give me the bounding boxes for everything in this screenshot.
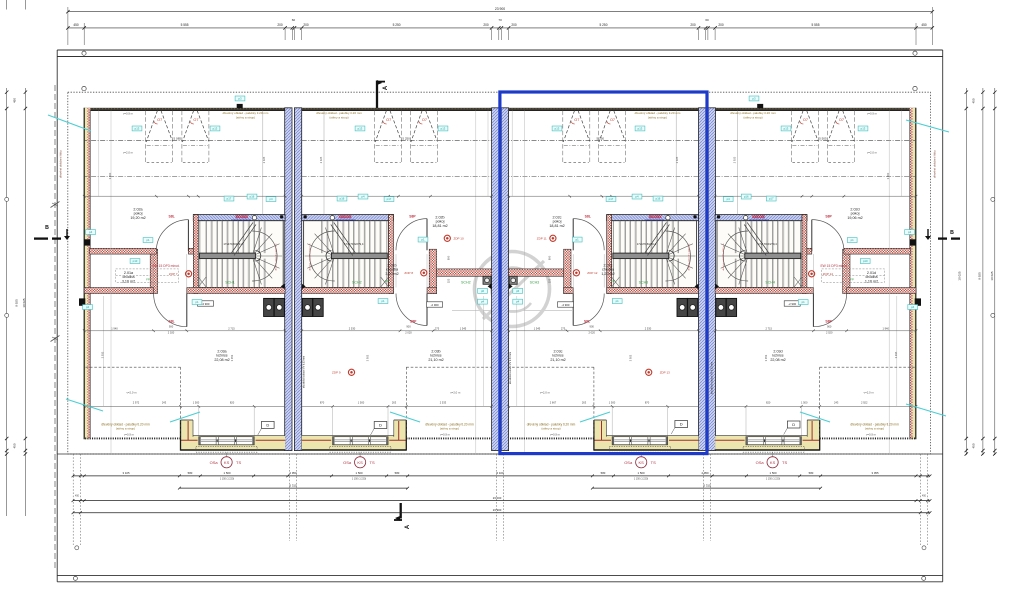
- svg-text:TS: TS: [782, 460, 787, 465]
- svg-text:dřevěné obložení štítu: dřevěné obložení štítu: [933, 150, 937, 178]
- svg-text:820: 820: [766, 401, 771, 405]
- svg-text:1 500: 1 500: [193, 401, 200, 405]
- svg-text:200: 200: [259, 0, 264, 1]
- svg-text:A: A: [405, 524, 411, 529]
- svg-text:9 925: 9 925: [977, 272, 981, 280]
- svg-text:2.03a: 2.03a: [217, 349, 227, 353]
- svg-text:60: 60: [292, 18, 296, 22]
- svg-text:p6: p6: [481, 289, 485, 293]
- svg-text:2.03d: 2.03d: [773, 349, 782, 353]
- svg-text:2 950: 2 950: [702, 471, 709, 475]
- svg-text:p13: p13: [213, 127, 218, 131]
- svg-text:580: 580: [395, 471, 400, 475]
- svg-text:p17: p17: [609, 197, 614, 201]
- svg-text:FP: FP: [146, 278, 150, 282]
- svg-text:450: 450: [972, 443, 976, 448]
- svg-text:1,16 m2: 1,16 m2: [865, 280, 878, 284]
- svg-text:3 953: 3 953: [629, 354, 633, 361]
- svg-text:akustická izolace MV tl.50 mm: akustická izolace MV tl.50 mm: [710, 362, 713, 394]
- svg-text:FP: FP: [611, 279, 615, 283]
- svg-text:1 150 (1 220): 1 150 (1 220): [634, 477, 648, 480]
- svg-text:D: D: [680, 422, 683, 427]
- svg-text:p3: p3: [238, 97, 242, 101]
- svg-text:chodba: chodba: [602, 268, 615, 272]
- svg-text:(stěny a strop): (stěny a strop): [648, 115, 667, 119]
- svg-text:2 715: 2 715: [765, 326, 772, 330]
- svg-text:525: 525: [548, 278, 552, 283]
- svg-text:3,16 m2: 3,16 m2: [122, 280, 135, 284]
- svg-text:p1: p1: [421, 238, 425, 242]
- svg-text:3 953: 3 953: [764, 354, 768, 361]
- svg-text:2 950: 2 950: [290, 471, 297, 475]
- svg-text:600: 600: [684, 0, 689, 1]
- svg-text:5 250: 5 250: [597, 137, 605, 141]
- svg-text:2 020: 2 020: [830, 0, 837, 1]
- svg-text:(stěny a strop): (stěny a strop): [743, 115, 762, 119]
- svg-text:pokoj: pokoj: [851, 212, 860, 216]
- svg-text:600: 600: [312, 0, 317, 1]
- svg-text:243: 243: [162, 401, 167, 405]
- svg-text:A: A: [383, 85, 389, 90]
- svg-text:275: 275: [561, 326, 566, 330]
- svg-text:S8L: S8L: [168, 215, 174, 219]
- svg-text:2 925: 2 925: [319, 156, 323, 163]
- svg-text:p13: p13: [861, 127, 866, 131]
- svg-text:200: 200: [688, 0, 693, 1]
- svg-text:450: 450: [73, 23, 79, 27]
- svg-text:2.01d: 2.01d: [867, 271, 876, 275]
- svg-text:-2 900: -2 900: [562, 303, 570, 307]
- svg-text:600: 600: [548, 255, 552, 260]
- svg-text:p16: p16: [656, 197, 661, 201]
- svg-text:p13: p13: [135, 127, 140, 131]
- svg-text:200: 200: [718, 23, 724, 27]
- svg-text:O7: O7: [803, 118, 808, 122]
- svg-text:(stěny a strop): (stěny a strop): [116, 427, 135, 431]
- svg-text:p17: p17: [227, 197, 232, 201]
- svg-text:1 150 (1 220): 1 150 (1 220): [766, 477, 780, 480]
- svg-text:O7: O7: [157, 118, 162, 122]
- svg-text:21,10 m2: 21,10 m2: [428, 358, 443, 362]
- svg-text:950: 950: [158, 0, 163, 1]
- svg-text:18,81 m2: 18,81 m2: [432, 224, 447, 228]
- svg-text:p1: p1: [146, 238, 150, 242]
- svg-text:p17: p17: [387, 197, 392, 201]
- svg-text:2 715: 2 715: [228, 326, 235, 330]
- svg-text:250: 250: [750, 0, 755, 1]
- svg-text:p10: p10: [133, 259, 138, 263]
- svg-text:5 250: 5 250: [393, 23, 401, 27]
- svg-text:SCH2: SCH2: [352, 280, 362, 284]
- svg-text:OSa: OSa: [343, 460, 352, 465]
- svg-text:243: 243: [834, 401, 839, 405]
- svg-text:600: 600: [447, 255, 451, 260]
- svg-text:2 530: 2 530: [645, 326, 652, 330]
- svg-text:70: 70: [498, 18, 502, 22]
- svg-text:250: 250: [659, 0, 664, 1]
- svg-text:5 100: 5 100: [497, 471, 504, 475]
- svg-text:17x170,6/279,4: 17x170,6/279,4: [758, 242, 778, 246]
- svg-text:p13: p13: [555, 127, 560, 131]
- svg-text:-2 900: -2 900: [202, 302, 210, 306]
- svg-text:18,81 m2: 18,81 m2: [549, 224, 564, 228]
- svg-text:580: 580: [601, 471, 606, 475]
- svg-text:v=0,9 m: v=0,9 m: [123, 112, 134, 116]
- svg-text:v=0,9 m: v=0,9 m: [550, 433, 561, 437]
- svg-text:820: 820: [230, 401, 235, 405]
- svg-text:D: D: [266, 422, 269, 427]
- svg-text:1 500: 1 500: [638, 471, 645, 475]
- svg-text:FP: FP: [850, 278, 854, 282]
- svg-text:2 525: 2 525: [767, 0, 774, 1]
- svg-text:ložnice: ložnice: [552, 354, 563, 358]
- svg-text:p13: p13: [441, 127, 446, 131]
- svg-text:B: B: [45, 225, 49, 231]
- svg-text:21,10 m2: 21,10 m2: [550, 358, 565, 362]
- svg-text:580: 580: [188, 471, 193, 475]
- svg-text:900: 900: [827, 325, 832, 329]
- svg-text:-2 900: -2 900: [788, 302, 796, 306]
- svg-text:p10: p10: [863, 259, 868, 263]
- svg-text:250: 250: [246, 0, 251, 1]
- svg-text:10 025: 10 025: [958, 271, 962, 281]
- svg-text:2 530: 2 530: [349, 326, 356, 330]
- svg-text:p3: p3: [752, 97, 756, 101]
- svg-text:O7: O7: [839, 118, 844, 122]
- svg-text:FP: FP: [385, 279, 389, 283]
- svg-text:(stěny a strop): (stěny a strop): [236, 115, 255, 119]
- svg-text:SCH2: SCH2: [461, 280, 471, 284]
- svg-text:SCH3: SCH3: [639, 280, 649, 284]
- svg-text:200: 200: [483, 23, 489, 27]
- svg-text:pokoj: pokoj: [134, 212, 143, 216]
- svg-text:1 980: 1 980: [485, 0, 492, 1]
- svg-text:-2 900: -2 900: [431, 303, 439, 307]
- svg-text:900: 900: [558, 0, 563, 1]
- svg-text:v=0,9 m: v=0,9 m: [866, 433, 877, 437]
- svg-text:ZOP 14: ZOP 14: [823, 272, 834, 276]
- svg-text:2.03b: 2.03b: [431, 349, 440, 353]
- svg-text:19,20 m2: 19,20 m2: [130, 216, 145, 220]
- svg-text:O7: O7: [386, 118, 391, 122]
- svg-text:ložnice: ložnice: [216, 354, 227, 358]
- svg-text:10 025: 10 025: [990, 271, 994, 281]
- svg-text:3 055: 3 055: [872, 471, 879, 475]
- svg-text:EW 15 DP3 minut.: EW 15 DP3 minut.: [820, 264, 847, 268]
- svg-text:v=2,0 m: v=2,0 m: [126, 390, 137, 394]
- svg-text:p1: p1: [381, 299, 385, 303]
- svg-text:ZOP 8: ZOP 8: [404, 271, 413, 275]
- svg-text:3 105: 3 105: [123, 471, 130, 475]
- svg-text:p1: p1: [802, 300, 806, 304]
- svg-text:ZDP 13: ZDP 13: [660, 371, 670, 375]
- svg-text:2 525: 2 525: [640, 0, 647, 1]
- svg-text:p6: p6: [516, 289, 520, 293]
- svg-text:3,20 m2: 3,20 m2: [385, 272, 398, 276]
- svg-text:p17: p17: [769, 197, 774, 201]
- svg-text:3 953: 3 953: [230, 354, 234, 361]
- svg-text:2.01c: 2.01c: [603, 263, 612, 267]
- svg-text:TS: TS: [370, 460, 375, 465]
- svg-text:KS: KS: [639, 460, 645, 465]
- svg-text:p4: p4: [361, 195, 365, 199]
- svg-text:1 545: 1 545: [460, 326, 467, 330]
- svg-text:600: 600: [271, 0, 276, 1]
- svg-text:p4: p4: [727, 197, 731, 201]
- svg-text:ZOP 7: ZOP 7: [169, 272, 178, 276]
- svg-text:pokoj: pokoj: [553, 220, 562, 224]
- svg-text:D: D: [379, 423, 382, 428]
- svg-text:1 940: 1 940: [882, 326, 889, 330]
- svg-text:200: 200: [324, 0, 329, 1]
- svg-text:17x170,6/279,4: 17x170,6/279,4: [344, 242, 364, 246]
- svg-text:(stěny a strop): (stěny a strop): [440, 427, 459, 431]
- svg-text:450: 450: [13, 443, 17, 448]
- svg-text:1 500: 1 500: [224, 471, 231, 475]
- svg-text:KS: KS: [357, 460, 363, 465]
- svg-text:O7: O7: [610, 118, 615, 122]
- svg-text:1 940: 1 940: [111, 326, 118, 330]
- svg-text:2.02b: 2.02b: [435, 215, 444, 219]
- svg-text:v=2,0 m: v=2,0 m: [864, 390, 875, 394]
- svg-text:ZOP 12: ZOP 12: [587, 271, 598, 275]
- svg-text:2 922: 2 922: [861, 401, 868, 405]
- svg-text:450: 450: [13, 98, 17, 103]
- svg-text:200: 200: [511, 23, 517, 27]
- svg-text:p16: p16: [744, 195, 749, 199]
- svg-text:2 020: 2 020: [405, 331, 412, 335]
- svg-text:S8L: S8L: [168, 319, 174, 323]
- svg-text:p4: p4: [86, 305, 90, 309]
- svg-text:1,20 m2: 1,20 m2: [601, 272, 614, 276]
- svg-text:v=0,9 m: v=0,9 m: [440, 433, 451, 437]
- svg-text:TS: TS: [236, 460, 241, 465]
- svg-text:O7: O7: [422, 118, 427, 122]
- svg-text:900: 900: [169, 325, 174, 329]
- svg-text:200: 200: [737, 0, 742, 1]
- svg-text:2.01b: 2.01b: [387, 263, 396, 267]
- svg-text:p13: p13: [358, 127, 363, 131]
- svg-text:23 000: 23 000: [493, 496, 502, 500]
- svg-text:O7: O7: [574, 118, 579, 122]
- svg-text:900: 900: [590, 325, 595, 329]
- svg-text:5 505: 5 505: [819, 137, 827, 141]
- svg-text:870: 870: [320, 401, 325, 405]
- svg-text:1 500: 1 500: [770, 471, 777, 475]
- svg-text:1 980: 1 980: [509, 0, 516, 1]
- svg-text:525: 525: [447, 278, 451, 283]
- svg-text:2 020: 2 020: [588, 331, 595, 335]
- svg-text:p4: p4: [481, 300, 485, 304]
- svg-text:2.02a: 2.02a: [133, 207, 143, 211]
- svg-text:TS: TS: [651, 460, 656, 465]
- svg-text:22,08 m2: 22,08 m2: [770, 358, 785, 362]
- svg-text:2 667: 2 667: [550, 401, 557, 405]
- svg-text:10 025: 10 025: [22, 298, 26, 308]
- svg-text:S8L: S8L: [584, 319, 590, 323]
- svg-text:p16: p16: [250, 195, 255, 199]
- svg-text:p4: p4: [516, 300, 520, 304]
- svg-text:1 500: 1 500: [358, 401, 365, 405]
- svg-text:ložnice: ložnice: [772, 354, 783, 358]
- svg-text:600: 600: [725, 0, 730, 1]
- svg-text:p1: p1: [616, 299, 620, 303]
- svg-text:KS: KS: [224, 460, 230, 465]
- svg-text:p4: p4: [908, 230, 912, 234]
- svg-text:p4: p4: [269, 197, 273, 201]
- svg-text:2 925: 2 925: [732, 156, 736, 163]
- svg-text:v=2,0 m: v=2,0 m: [123, 151, 134, 155]
- svg-text:900: 900: [851, 0, 856, 1]
- svg-text:(stěny a strop): (stěny a strop): [329, 115, 348, 119]
- svg-text:17x170,6/279,4: 17x170,6/279,4: [223, 242, 243, 246]
- svg-text:2 925: 2 925: [675, 156, 679, 163]
- svg-text:S8P: S8P: [825, 319, 832, 323]
- svg-text:2 020: 2 020: [164, 0, 171, 1]
- svg-text:akustická izolace MV tl.50 mm: akustická izolace MV tl.50 mm: [509, 352, 512, 384]
- svg-text:2 020: 2 020: [826, 331, 833, 335]
- svg-text:22,08 m2: 22,08 m2: [214, 358, 229, 362]
- svg-text:v=2,0 m: v=2,0 m: [540, 390, 551, 394]
- svg-text:v=0,9 m: v=0,9 m: [124, 433, 135, 437]
- svg-text:3 935: 3 935: [894, 351, 898, 358]
- svg-text:dřevěné zábradlí v.1100 mm: dřevěné zábradlí v.1100 mm: [688, 243, 691, 271]
- svg-text:SCH3: SCH3: [530, 280, 540, 284]
- svg-text:2 972: 2 972: [133, 401, 140, 405]
- svg-text:19,06 m2: 19,06 m2: [847, 216, 862, 220]
- svg-text:EW 15 DP3 minut.: EW 15 DP3 minut.: [152, 264, 179, 268]
- svg-text:5 085: 5 085: [174, 137, 182, 141]
- svg-text:p4: p4: [89, 230, 93, 234]
- svg-text:akustická izolace MV tl.50 mm: akustická izolace MV tl.50 mm: [302, 356, 305, 388]
- svg-text:OSa: OSa: [756, 460, 765, 465]
- svg-text:2 020: 2 020: [417, 0, 424, 1]
- svg-text:3 953: 3 953: [366, 354, 370, 361]
- svg-text:450: 450: [921, 23, 927, 27]
- svg-text:2 533: 2 533: [440, 401, 447, 405]
- svg-text:SCH1: SCH1: [225, 280, 235, 284]
- svg-text:S8L: S8L: [585, 215, 591, 219]
- svg-text:v=2,0 m: v=2,0 m: [867, 151, 878, 155]
- svg-text:2 525: 2 525: [227, 0, 234, 1]
- svg-text:2.03c: 2.03c: [553, 349, 562, 353]
- svg-text:S8P: S8P: [825, 215, 832, 219]
- svg-text:9 925: 9 925: [15, 299, 19, 307]
- svg-text:dřevěné zábradlí v.1100 mm: dřevěné zábradlí v.1100 mm: [274, 243, 277, 271]
- svg-text:KS: KS: [770, 460, 776, 465]
- svg-text:S8P: S8P: [409, 215, 416, 219]
- svg-text:23 900: 23 900: [493, 508, 502, 512]
- svg-text:ZDP 10: ZDP 10: [454, 237, 464, 241]
- svg-text:dřevěné obložení štítu: dřevěné obložení štítu: [59, 150, 63, 178]
- svg-text:p16: p16: [340, 197, 345, 201]
- svg-text:v=0,9 m: v=0,9 m: [867, 112, 878, 116]
- svg-text:1 150 (1 220): 1 150 (1 220): [352, 477, 366, 480]
- svg-text:D: D: [792, 422, 795, 427]
- svg-text:S8P: S8P: [410, 319, 417, 323]
- svg-text:450: 450: [75, 495, 80, 498]
- svg-text:6 310: 6 310: [704, 483, 711, 487]
- svg-text:1 500: 1 500: [609, 401, 616, 405]
- svg-text:ZDP 9: ZDP 9: [332, 371, 341, 375]
- svg-text:250: 250: [337, 0, 342, 1]
- svg-text:ložnice: ložnice: [430, 354, 441, 358]
- svg-text:v=2,0 m: v=2,0 m: [450, 390, 461, 394]
- svg-text:B: B: [950, 230, 954, 236]
- svg-text:2.02d: 2.02d: [850, 207, 859, 211]
- svg-text:(stěny a strop): (stěny a strop): [541, 427, 560, 431]
- svg-text:950: 950: [425, 0, 430, 1]
- svg-text:200: 200: [303, 23, 309, 27]
- svg-text:5 555: 5 555: [181, 23, 189, 27]
- svg-text:p13: p13: [784, 127, 789, 131]
- svg-text:p4: p4: [635, 195, 639, 199]
- svg-text:2.01a: 2.01a: [124, 271, 134, 275]
- svg-text:450: 450: [972, 98, 976, 103]
- svg-text:263: 263: [392, 401, 397, 405]
- svg-text:200: 200: [275, 0, 280, 1]
- svg-text:ZDP 11: ZDP 11: [537, 237, 547, 241]
- svg-text:p1: p1: [195, 300, 199, 304]
- svg-text:60: 60: [705, 18, 709, 22]
- svg-text:5 250: 5 250: [600, 23, 608, 27]
- svg-text:6 310: 6 310: [290, 483, 297, 487]
- svg-text:900: 900: [438, 0, 443, 1]
- svg-text:2 925: 2 925: [262, 156, 266, 163]
- svg-text:580: 580: [809, 471, 814, 475]
- svg-text:870: 870: [645, 401, 650, 405]
- svg-text:1 545: 1 545: [534, 326, 541, 330]
- svg-text:OSa: OSa: [624, 460, 633, 465]
- svg-text:17x170,6/279,4: 17x170,6/279,4: [637, 242, 657, 246]
- svg-text:chodba: chodba: [386, 268, 399, 272]
- svg-text:950: 950: [571, 0, 576, 1]
- svg-text:23 900: 23 900: [495, 7, 505, 11]
- svg-text:200: 200: [277, 23, 283, 27]
- svg-text:p13: p13: [638, 127, 643, 131]
- svg-text:2 525: 2 525: [354, 0, 361, 1]
- svg-text:1 150 (1 220): 1 150 (1 220): [220, 477, 234, 480]
- svg-text:5 555: 5 555: [812, 23, 820, 27]
- svg-text:200: 200: [672, 0, 677, 1]
- svg-text:1 980: 1 980: [898, 0, 905, 1]
- svg-text:1 500: 1 500: [801, 401, 808, 405]
- svg-text:2.02c: 2.02c: [552, 215, 561, 219]
- svg-text:1 980: 1 980: [96, 0, 103, 1]
- svg-text:(stěny a strop): (stěny a strop): [865, 427, 884, 431]
- svg-text:263: 263: [582, 401, 587, 405]
- svg-text:900: 900: [145, 0, 150, 1]
- svg-text:5 250: 5 250: [402, 137, 410, 141]
- svg-text:450: 450: [922, 495, 927, 498]
- svg-text:pokoj: pokoj: [436, 220, 445, 224]
- svg-text:2 020: 2 020: [168, 331, 175, 335]
- svg-text:3 935: 3 935: [100, 351, 104, 358]
- svg-text:OSa: OSa: [210, 460, 219, 465]
- svg-text:dřevěné zábradlí v.1100 mm: dřevěné zábradlí v.1100 mm: [722, 243, 725, 271]
- svg-text:dřevěné zábradlí v.1100 mm: dřevěné zábradlí v.1100 mm: [309, 243, 312, 271]
- svg-text:1 500: 1 500: [356, 471, 363, 475]
- svg-text:3 900: 3 900: [108, 172, 112, 179]
- svg-text:900: 900: [406, 325, 411, 329]
- svg-text:200: 200: [690, 23, 696, 27]
- svg-text:3 900: 3 900: [886, 172, 890, 179]
- svg-text:950: 950: [838, 0, 843, 1]
- svg-text:SCH4: SCH4: [765, 280, 775, 284]
- svg-text:2 020: 2 020: [577, 0, 584, 1]
- svg-text:p4: p4: [911, 305, 915, 309]
- svg-text:p1: p1: [851, 238, 855, 242]
